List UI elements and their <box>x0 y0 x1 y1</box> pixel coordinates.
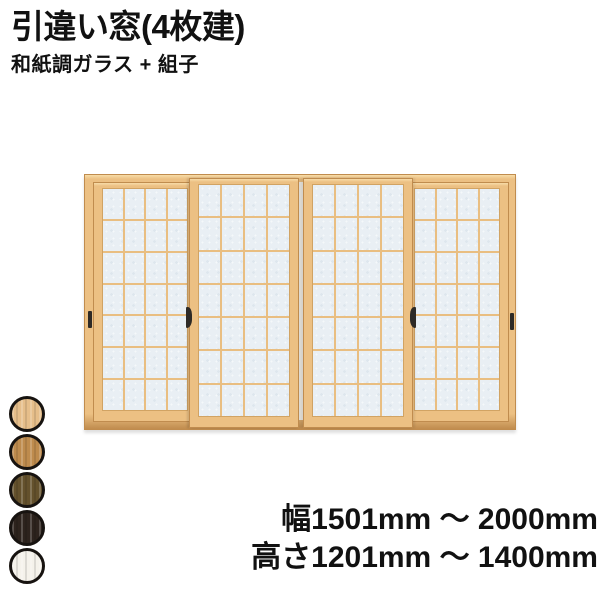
glass-cell <box>125 316 145 346</box>
glass-cell <box>199 385 220 416</box>
glass-cell <box>437 285 457 315</box>
panel-handle-icon <box>410 307 416 328</box>
glass-cell <box>336 218 357 249</box>
glass-cell <box>168 189 188 219</box>
glass-cell <box>268 351 289 382</box>
glass-cell <box>103 221 123 251</box>
glass-cell <box>199 252 220 283</box>
glass-cell <box>415 316 435 346</box>
glass-cell <box>415 285 435 315</box>
glass-cell <box>168 380 188 410</box>
color-swatch-dark-walnut[interactable] <box>9 472 45 508</box>
glass-cell <box>103 253 123 283</box>
glass-cell <box>125 348 145 378</box>
glass-cell <box>268 385 289 416</box>
glass-cell <box>146 380 166 410</box>
panel-glass <box>102 188 188 411</box>
color-swatch-dark-brown[interactable] <box>9 510 45 546</box>
glass-cell <box>359 252 380 283</box>
sliding-panel-3 <box>303 178 413 428</box>
glass-cell <box>336 252 357 283</box>
glass-cell <box>245 185 266 216</box>
color-swatch-list <box>9 396 45 584</box>
glass-cell <box>415 189 435 219</box>
glass-cell <box>222 351 243 382</box>
glass-cell <box>437 316 457 346</box>
glass-cell <box>359 285 380 316</box>
header: 引違い窓(4枚建) 和紙調ガラス + 組子 <box>11 9 245 77</box>
glass-cell <box>437 380 457 410</box>
glass-cell <box>103 189 123 219</box>
glass-cell <box>103 348 123 378</box>
glass-cell <box>125 221 145 251</box>
glass-cell <box>480 189 500 219</box>
glass-cell <box>415 380 435 410</box>
glass-cell <box>222 185 243 216</box>
glass-cell <box>222 318 243 349</box>
glass-cell <box>245 285 266 316</box>
glass-cell <box>245 252 266 283</box>
glass-cell <box>336 351 357 382</box>
glass-cell <box>146 348 166 378</box>
glass-cell <box>480 221 500 251</box>
color-swatch-white[interactable] <box>9 548 45 584</box>
sliding-panel-4 <box>405 182 509 422</box>
glass-cell <box>268 285 289 316</box>
glass-cell <box>222 285 243 316</box>
glass-cell <box>415 253 435 283</box>
width-range-text: 幅1501mm ～ 2000mm <box>251 501 598 539</box>
glass-cell <box>146 221 166 251</box>
glass-cell <box>336 185 357 216</box>
glass-cell <box>382 252 403 283</box>
glass-cell <box>382 318 403 349</box>
glass-cell <box>103 285 123 315</box>
glass-cell <box>437 221 457 251</box>
glass-cell <box>313 385 334 416</box>
page-title: 引違い窓(4枚建) <box>11 9 245 45</box>
glass-cell <box>480 380 500 410</box>
glass-cell <box>222 218 243 249</box>
glass-cell <box>437 348 457 378</box>
panel-glass <box>312 184 404 417</box>
product-image-window <box>84 174 516 430</box>
sliding-panel-2 <box>189 178 299 428</box>
glass-cell <box>199 218 220 249</box>
glass-cell <box>103 380 123 410</box>
glass-cell <box>480 348 500 378</box>
glass-cell <box>382 285 403 316</box>
glass-cell <box>199 285 220 316</box>
glass-cell <box>480 285 500 315</box>
glass-cell <box>103 316 123 346</box>
sliding-panel-1 <box>93 182 197 422</box>
glass-cell <box>336 385 357 416</box>
height-range-text: 高さ1201mm ～ 1400mm <box>251 539 598 577</box>
glass-cell <box>168 285 188 315</box>
glass-cell <box>359 318 380 349</box>
glass-cell <box>245 385 266 416</box>
glass-cell <box>359 351 380 382</box>
glass-cell <box>415 221 435 251</box>
glass-cell <box>168 221 188 251</box>
glass-cell <box>458 189 478 219</box>
glass-cell <box>458 253 478 283</box>
glass-cell <box>168 348 188 378</box>
glass-cell <box>245 351 266 382</box>
page-subtitle: 和紙調ガラス + 組子 <box>11 48 245 77</box>
glass-cell <box>313 285 334 316</box>
glass-cell <box>199 351 220 382</box>
glass-cell <box>199 318 220 349</box>
glass-cell <box>125 253 145 283</box>
glass-cell <box>268 252 289 283</box>
glass-cell <box>359 218 380 249</box>
glass-cell <box>125 380 145 410</box>
glass-cell <box>480 316 500 346</box>
color-swatch-light-wood[interactable] <box>9 396 45 432</box>
glass-cell <box>458 285 478 315</box>
glass-cell <box>437 189 457 219</box>
glass-cell <box>146 285 166 315</box>
glass-cell <box>458 380 478 410</box>
glass-cell <box>313 252 334 283</box>
glass-cell <box>268 218 289 249</box>
glass-cell <box>458 221 478 251</box>
glass-cell <box>382 351 403 382</box>
glass-cell <box>437 253 457 283</box>
glass-cell <box>382 218 403 249</box>
glass-cell <box>415 348 435 378</box>
glass-cell <box>168 316 188 346</box>
glass-cell <box>458 316 478 346</box>
panel-glass <box>198 184 290 417</box>
panel-glass <box>414 188 500 411</box>
glass-cell <box>245 218 266 249</box>
glass-cell <box>125 285 145 315</box>
glass-cell <box>222 252 243 283</box>
glass-cell <box>313 185 334 216</box>
glass-cell <box>268 318 289 349</box>
glass-cell <box>359 385 380 416</box>
glass-cell <box>125 189 145 219</box>
glass-cell <box>146 316 166 346</box>
glass-cell <box>382 385 403 416</box>
color-swatch-golden-oak[interactable] <box>9 434 45 470</box>
glass-cell <box>458 348 478 378</box>
glass-cell <box>222 385 243 416</box>
glass-cell <box>359 185 380 216</box>
glass-cell <box>336 318 357 349</box>
glass-cell <box>382 185 403 216</box>
glass-cell <box>313 318 334 349</box>
glass-cell <box>313 351 334 382</box>
glass-cell <box>245 318 266 349</box>
glass-cell <box>268 185 289 216</box>
panel-handle-icon <box>88 311 92 328</box>
panel-handle-icon <box>510 313 514 330</box>
glass-cell <box>313 218 334 249</box>
glass-cell <box>199 185 220 216</box>
glass-cell <box>336 285 357 316</box>
size-specs: 幅1501mm ～ 2000mm 高さ1201mm ～ 1400mm <box>251 501 598 577</box>
glass-cell <box>168 253 188 283</box>
glass-cell <box>146 189 166 219</box>
glass-cell <box>146 253 166 283</box>
glass-cell <box>480 253 500 283</box>
